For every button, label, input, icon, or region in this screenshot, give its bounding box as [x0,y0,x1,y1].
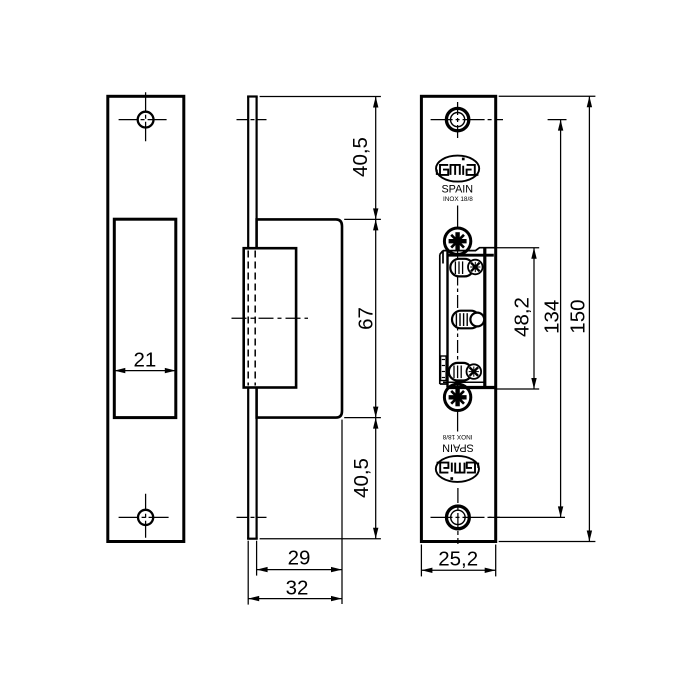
svg-text:134: 134 [541,300,564,334]
svg-text:21: 21 [133,349,156,372]
svg-text:SPAIN: SPAIN [441,184,473,196]
svg-text:INOX 18/8: INOX 18/8 [443,196,473,203]
svg-text:32: 32 [286,576,309,599]
svg-text:67: 67 [354,307,377,330]
svg-text:29: 29 [288,547,311,570]
svg-text:40,5: 40,5 [350,458,373,498]
svg-text:25,2: 25,2 [438,547,478,570]
svg-text:48,2: 48,2 [511,297,534,337]
svg-text:INOX 18/8: INOX 18/8 [442,433,472,440]
svg-text:SPAIN: SPAIN [442,442,474,454]
svg-text:150: 150 [566,299,589,333]
svg-text:40,5: 40,5 [349,137,372,177]
